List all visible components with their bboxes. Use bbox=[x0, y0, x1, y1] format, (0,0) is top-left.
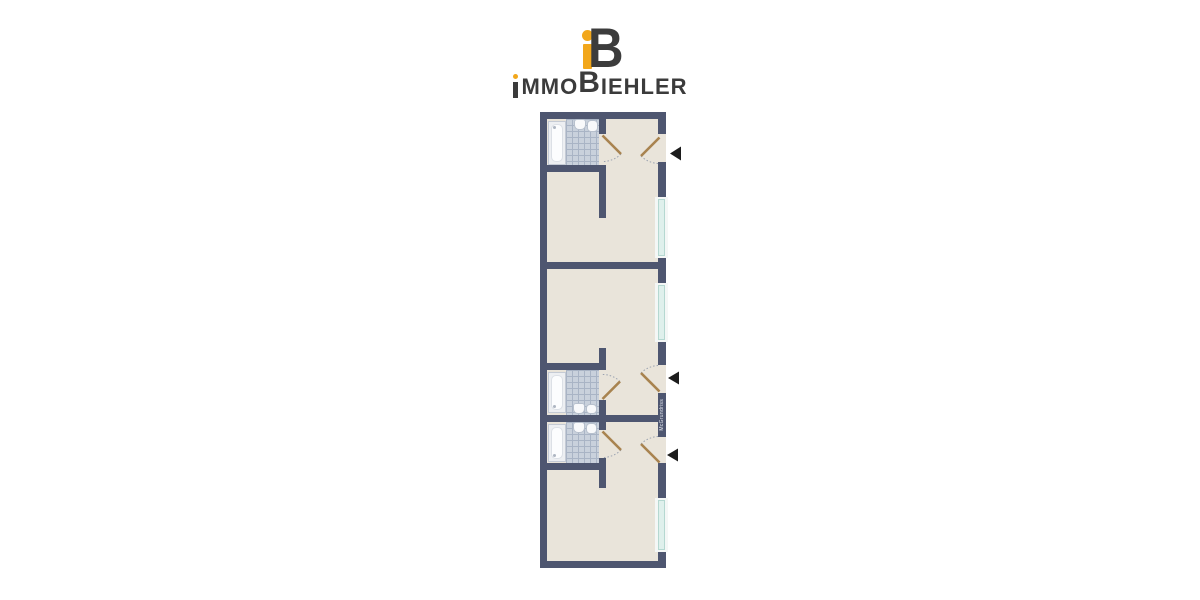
door-swing-arc bbox=[641, 156, 660, 164]
door-swing-arc bbox=[603, 450, 622, 458]
bathroom-door-top bbox=[603, 136, 622, 155]
bathroom-door-bottom bbox=[603, 432, 622, 451]
door-swing-arc bbox=[603, 374, 621, 381]
entry-door-top bbox=[641, 138, 660, 157]
wordmark-i-dot-icon bbox=[513, 74, 518, 79]
brand-logo: B MMO B IEHLER bbox=[0, 0, 1200, 110]
doors-and-arrows-layer bbox=[540, 112, 690, 568]
door-swing-arc bbox=[641, 436, 660, 444]
door-swing-arc bbox=[641, 365, 660, 373]
entry-arrow-middle-icon bbox=[668, 372, 679, 385]
entry-door-bottom bbox=[641, 444, 660, 463]
entry-arrow-top-icon bbox=[670, 147, 681, 161]
wordmark-i-glyph bbox=[512, 81, 519, 98]
wordmark-text-mmo: MMO bbox=[521, 76, 578, 98]
wordmark-text-iehler: IEHLER bbox=[601, 76, 688, 98]
entry-door-middle bbox=[641, 373, 660, 392]
brand-wordmark: MMO B IEHLER bbox=[500, 72, 700, 98]
wordmark-i-stem-icon bbox=[513, 82, 518, 98]
plan-watermark-text: McGrundriss bbox=[658, 399, 666, 431]
door-swing-arc bbox=[603, 154, 622, 162]
wordmark-text-b: B bbox=[578, 68, 601, 98]
bathroom-door-middle bbox=[603, 382, 621, 400]
floor-plan: McGrundriss bbox=[540, 112, 666, 568]
entry-arrow-bottom-icon bbox=[667, 449, 678, 462]
plan-watermark: McGrundriss bbox=[658, 393, 666, 437]
